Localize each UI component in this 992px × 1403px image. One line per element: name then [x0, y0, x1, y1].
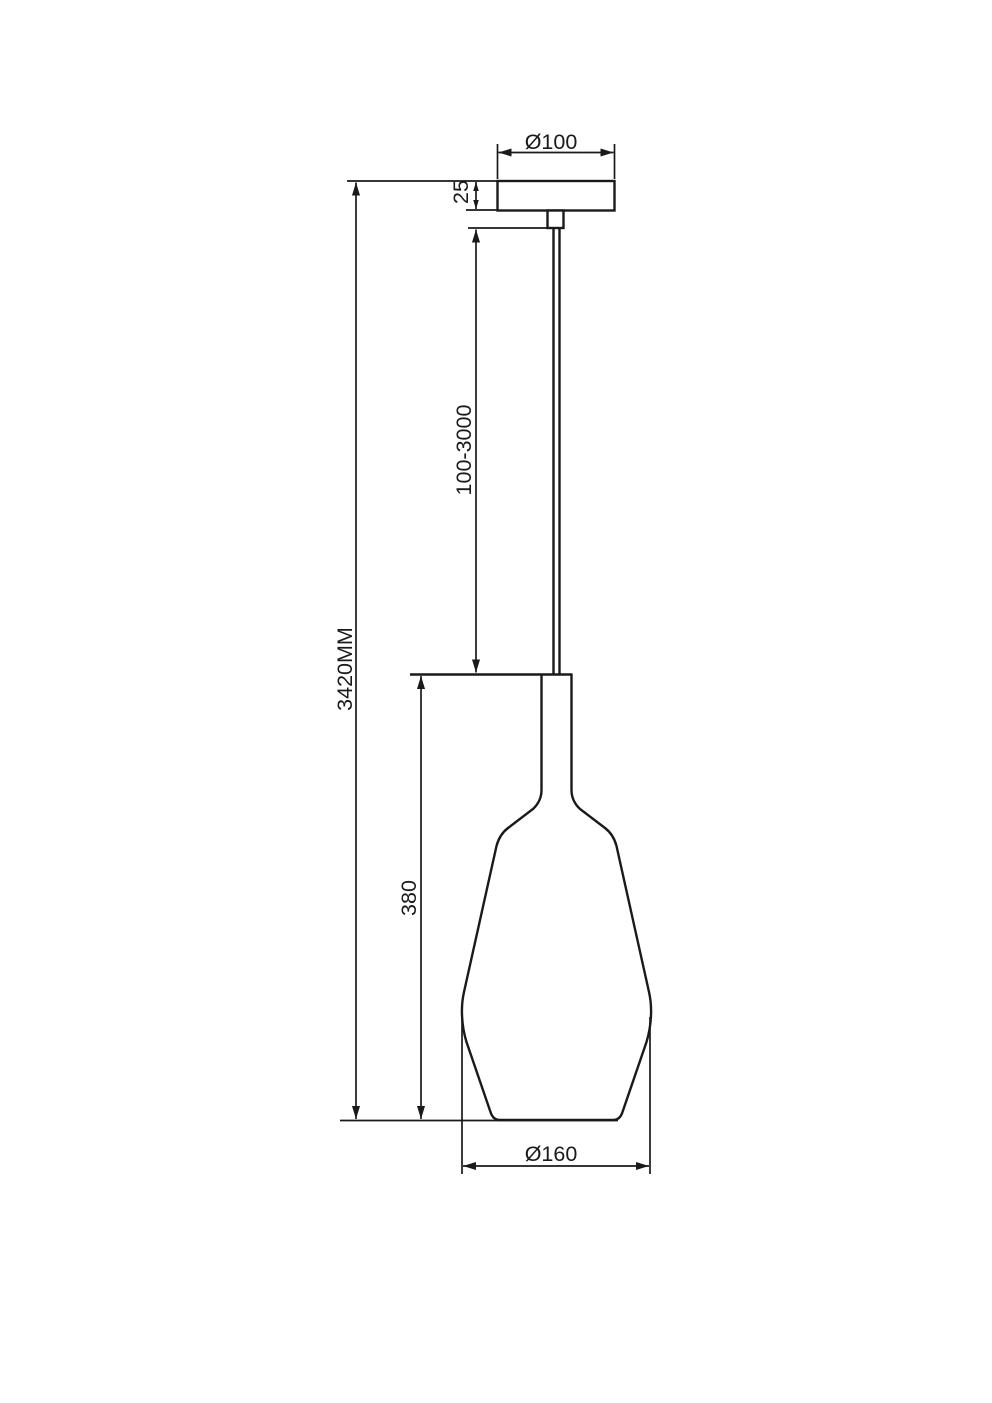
- dimension-suspension-length: 100-3000: [452, 228, 552, 673]
- dimension-shade-height: 380: [397, 676, 421, 1119]
- suspension-cable: [554, 229, 560, 674]
- dimension-canopy-diameter: Ø100: [498, 130, 615, 179]
- glass-shade-outline: [462, 674, 651, 1120]
- dim-label-canopy-diameter: Ø100: [525, 130, 578, 154]
- dimension-shade-diameter: Ø160: [462, 1017, 650, 1174]
- dimension-canopy-height: 25: [449, 180, 498, 210]
- drawing-canvas: Ø100 25 100-3000 3420MM 380: [0, 0, 992, 1403]
- ceiling-canopy: [498, 181, 615, 228]
- dim-label-shade-diameter: Ø160: [525, 1142, 578, 1166]
- dim-label-suspension-length: 100-3000: [452, 405, 476, 496]
- dim-label-shade-height: 380: [397, 880, 421, 916]
- dim-label-canopy-height: 25: [449, 180, 473, 204]
- pendant-lamp-technical-drawing: Ø100 25 100-3000 3420MM 380: [0, 0, 992, 1403]
- dim-label-overall-height: 3420MM: [333, 627, 357, 711]
- canopy-stem: [548, 211, 564, 229]
- canopy-outline: [498, 181, 615, 211]
